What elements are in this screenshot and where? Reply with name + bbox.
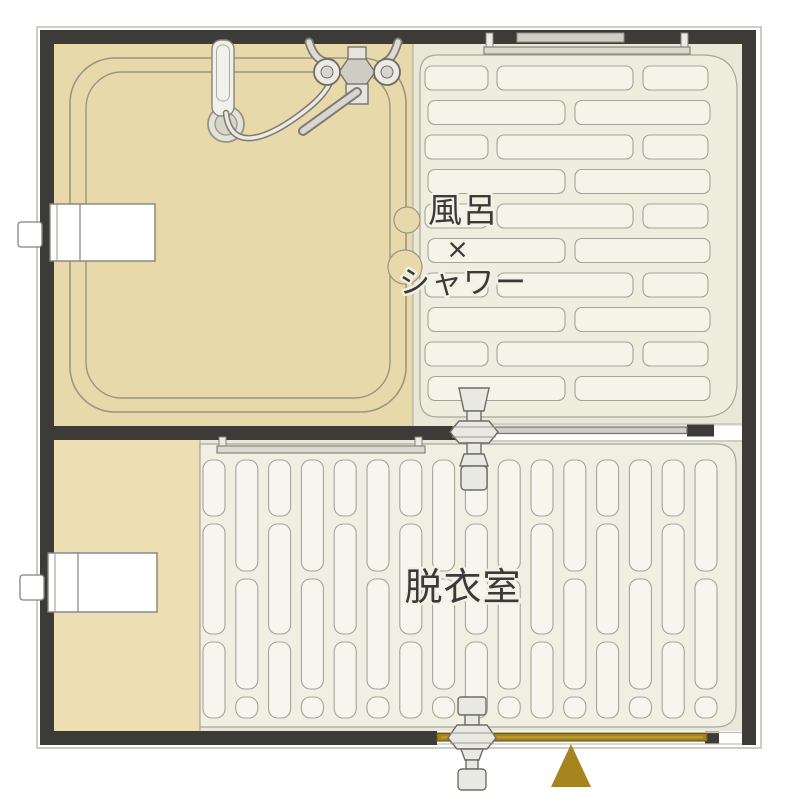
window-box[interactable] — [50, 204, 155, 261]
grab-bar — [484, 47, 690, 54]
faucet-handle-left[interactable] — [314, 59, 340, 85]
shower-head-holder — [212, 40, 234, 116]
window-handle-tab[interactable] — [18, 222, 42, 247]
towel-bar — [217, 446, 425, 453]
wall-bottom-right-corner — [742, 731, 756, 745]
window-bath — [18, 204, 155, 261]
window-box[interactable] — [48, 553, 157, 612]
window-handle-tab[interactable] — [20, 575, 44, 600]
floor-plan: 風呂 × シャワー 脱衣室 — [0, 0, 790, 812]
faucet-handle-right[interactable] — [374, 59, 400, 85]
tub-edge-bump-top — [394, 207, 420, 233]
bath-label-line2: × — [446, 234, 470, 265]
bath-label-line3: シャワー — [399, 265, 527, 301]
entrance-marker-icon — [551, 744, 591, 787]
bath-label-line1: 風呂 — [428, 191, 498, 231]
wall-middle — [40, 426, 457, 440]
middle-door-end-cap — [687, 424, 714, 437]
wall-left — [40, 30, 54, 745]
dressing-label: 脱衣室 — [404, 565, 521, 609]
floor-plan-canvas: 風呂 × シャワー 脱衣室 — [0, 0, 790, 812]
wall-bottom-left — [40, 731, 437, 745]
wall-right — [742, 30, 756, 745]
wall-shelf — [517, 33, 624, 42]
